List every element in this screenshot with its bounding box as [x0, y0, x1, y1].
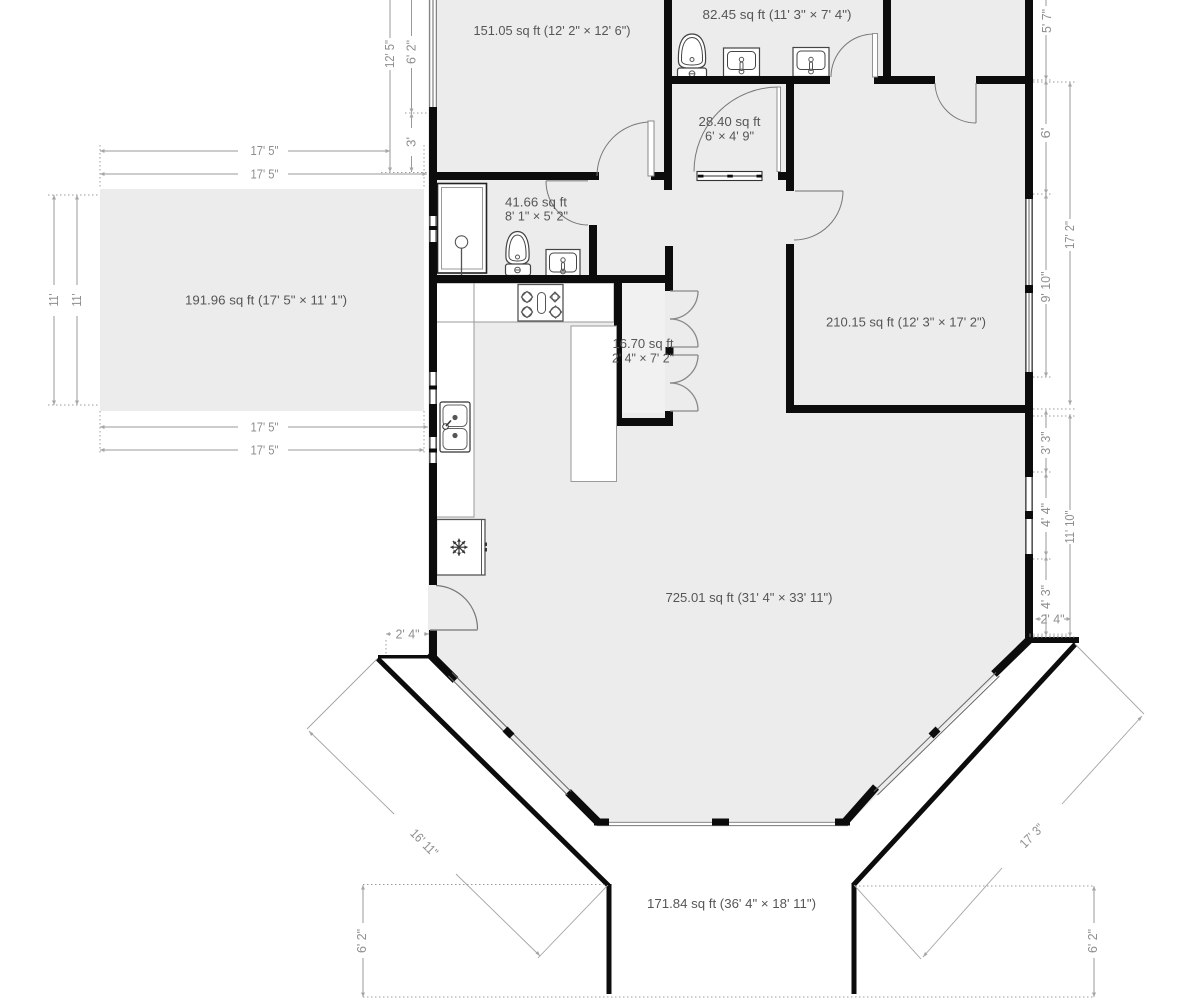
svg-text:5' 7": 5' 7" — [1039, 9, 1054, 33]
svg-text:16.70 sq ft: 16.70 sq ft — [613, 336, 674, 351]
svg-text:725.01 sq ft (31' 4" × 33' 11": 725.01 sq ft (31' 4" × 33' 11") — [666, 590, 833, 605]
svg-text:17' 5": 17' 5" — [251, 143, 279, 158]
svg-text:6' 2": 6' 2" — [404, 40, 419, 64]
svg-text:6' 2": 6' 2" — [1085, 929, 1100, 953]
svg-text:4' 4": 4' 4" — [1038, 503, 1053, 527]
svg-text:41.66 sq ft: 41.66 sq ft — [505, 195, 567, 210]
svg-text:3': 3' — [404, 137, 419, 147]
svg-text:2' 4": 2' 4" — [396, 627, 420, 642]
svg-text:17' 2": 17' 2" — [1062, 221, 1077, 249]
svg-text:11' 10": 11' 10" — [1062, 510, 1077, 543]
svg-text:2' 4": 2' 4" — [1041, 612, 1065, 627]
svg-text:9' 10": 9' 10" — [1038, 271, 1053, 302]
svg-text:17' 5": 17' 5" — [251, 443, 279, 458]
svg-text:11': 11' — [69, 294, 84, 307]
svg-text:171.84 sq ft (36' 4" × 18' 11": 171.84 sq ft (36' 4" × 18' 11") — [647, 896, 816, 911]
svg-text:82.45 sq ft (11' 3" × 7' 4"): 82.45 sq ft (11' 3" × 7' 4") — [703, 7, 852, 22]
svg-text:17' 5": 17' 5" — [251, 420, 279, 435]
svg-text:191.96 sq ft (17' 5" × 11' 1"): 191.96 sq ft (17' 5" × 11' 1") — [185, 293, 347, 308]
svg-text:151.05 sq ft (12' 2" × 12' 6"): 151.05 sq ft (12' 2" × 12' 6") — [474, 23, 631, 38]
svg-text:6' × 4' 9": 6' × 4' 9" — [705, 129, 754, 144]
svg-text:4' 3": 4' 3" — [1038, 585, 1053, 609]
svg-text:17' 3": 17' 3" — [1016, 820, 1047, 851]
svg-text:11': 11' — [46, 294, 61, 307]
svg-text:6' 2": 6' 2" — [354, 929, 369, 953]
svg-text:6': 6' — [1038, 128, 1053, 139]
svg-text:12' 5": 12' 5" — [382, 40, 397, 68]
svg-text:2' 4" × 7' 2": 2' 4" × 7' 2" — [612, 351, 674, 366]
svg-text:28.40 sq ft: 28.40 sq ft — [699, 114, 761, 129]
svg-text:210.15 sq ft (12' 3" × 17' 2"): 210.15 sq ft (12' 3" × 17' 2") — [826, 315, 986, 330]
svg-text:8' 1" × 5' 2": 8' 1" × 5' 2" — [505, 209, 568, 224]
svg-text:16' 11": 16' 11" — [407, 826, 441, 860]
svg-text:3' 3": 3' 3" — [1038, 431, 1053, 454]
svg-text:17' 5": 17' 5" — [251, 167, 279, 182]
